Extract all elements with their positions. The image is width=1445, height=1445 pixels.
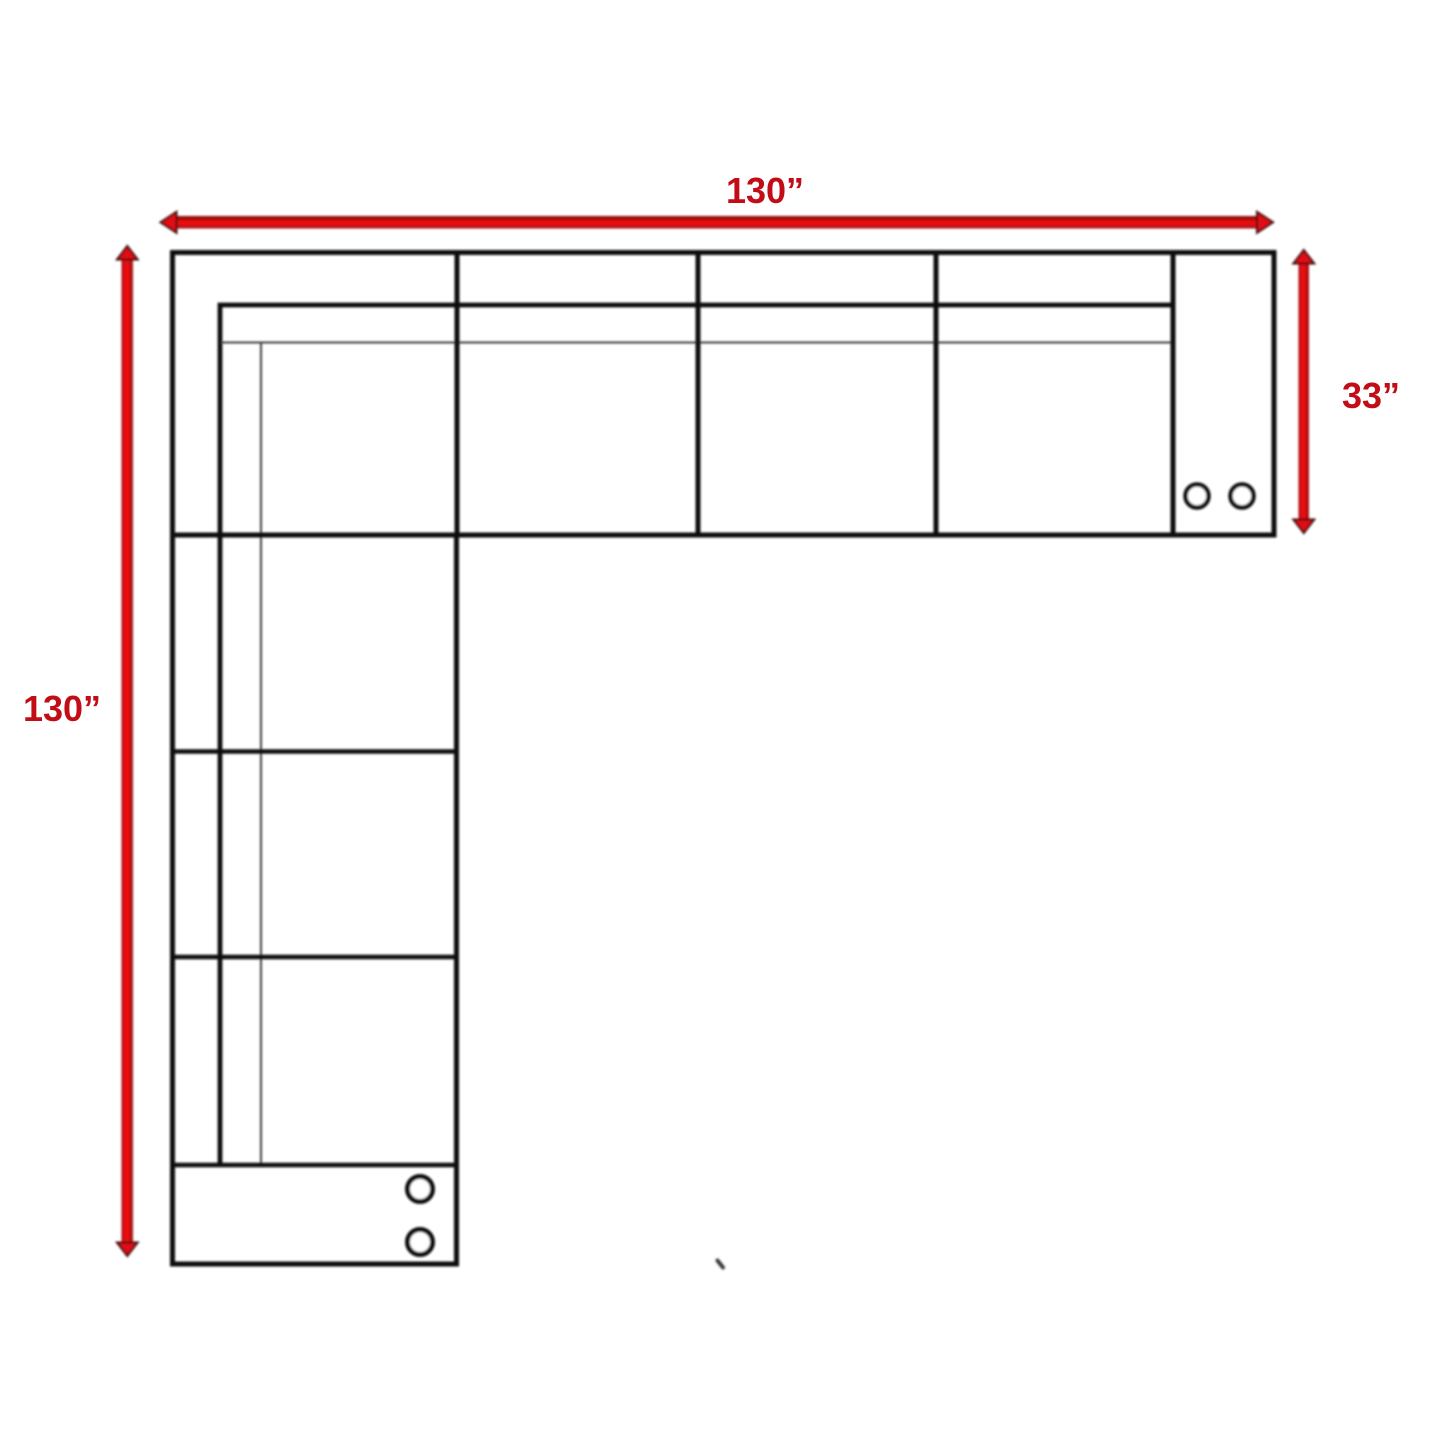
- svg-text:130”: 130”: [726, 170, 804, 211]
- svg-text:33”: 33”: [1342, 375, 1400, 416]
- svg-text:130”: 130”: [23, 688, 101, 729]
